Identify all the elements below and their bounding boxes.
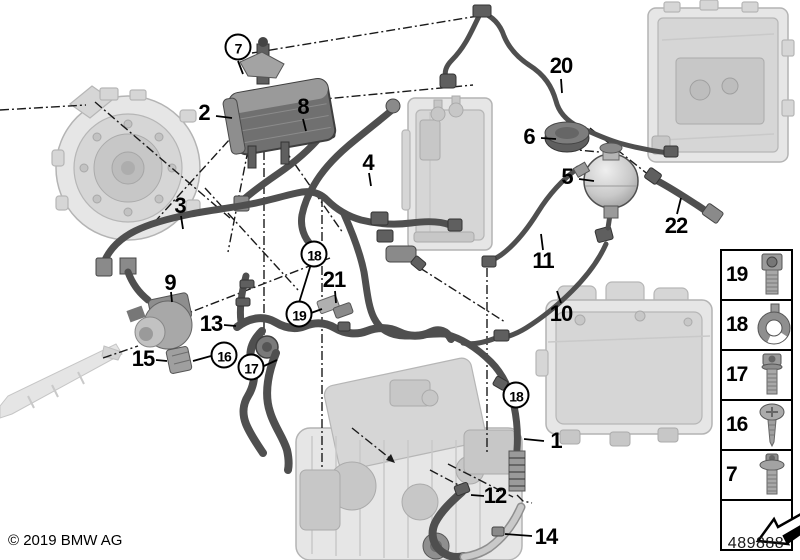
diagram-number: 489888 — [716, 535, 796, 553]
torx-screw-icon — [754, 352, 790, 398]
legend-item-7[interactable]: 7 — [722, 451, 791, 501]
callout-22[interactable]: 22 — [665, 213, 687, 239]
pan-head-screw-icon — [754, 402, 790, 448]
callout-17[interactable]: 17 — [238, 354, 265, 381]
callout-1[interactable]: 1 — [550, 428, 561, 454]
callout-19[interactable]: 19 — [286, 301, 313, 328]
callout-10[interactable]: 10 — [550, 301, 572, 327]
hose-17 — [267, 353, 289, 470]
expansion-tank — [573, 143, 638, 218]
callout-21[interactable]: 21 — [323, 267, 345, 293]
callout-11[interactable]: 11 — [532, 248, 553, 274]
legend-item-19[interactable]: 19 — [722, 251, 791, 301]
callout-2[interactable]: 2 — [198, 100, 209, 126]
tank-cap — [545, 122, 589, 152]
legend-item-16[interactable]: 16 — [722, 401, 791, 451]
legend-number: 18 — [726, 313, 752, 337]
copyright-text: © 2019 BMW AG — [8, 532, 122, 549]
mounting-bracket-15 — [166, 346, 193, 374]
callout-8[interactable]: 8 — [297, 94, 308, 120]
callout-13[interactable]: 13 — [200, 311, 222, 337]
callout-6[interactable]: 6 — [523, 124, 534, 150]
legend-item-17[interactable]: 17 — [722, 351, 791, 401]
hose-20 — [445, 12, 481, 78]
fasteners-legend: 191817167 — [720, 249, 793, 551]
legend-number: 7 — [726, 463, 752, 487]
electric-water-pump — [120, 258, 192, 349]
callout-7[interactable]: 7 — [225, 34, 252, 61]
callout-15[interactable]: 15 — [132, 346, 154, 372]
callout-12[interactable]: 12 — [484, 483, 506, 509]
callout-4[interactable]: 4 — [362, 150, 373, 176]
legend-number: 19 — [726, 263, 752, 287]
callout-16[interactable]: 16 — [211, 342, 238, 369]
legend-item-18[interactable]: 18 — [722, 301, 791, 351]
inverter-unit — [648, 0, 794, 162]
engine-block — [296, 356, 522, 560]
legend-number: 16 — [726, 413, 752, 437]
socket-head-screw-icon — [754, 252, 790, 298]
callout-9[interactable]: 9 — [164, 270, 175, 296]
callout-18[interactable]: 18 — [503, 382, 530, 409]
hose-clamp-icon — [754, 302, 794, 348]
callout-20[interactable]: 20 — [550, 53, 572, 79]
callout-18[interactable]: 18 — [301, 241, 328, 268]
diagram-canvas — [0, 0, 800, 560]
callout-14[interactable]: 14 — [535, 524, 557, 550]
flange-screw-icon — [754, 452, 790, 498]
callout-3[interactable]: 3 — [174, 193, 185, 219]
callout-5[interactable]: 5 — [561, 164, 572, 190]
legend-number: 17 — [726, 363, 752, 387]
driveshaft — [0, 344, 122, 418]
